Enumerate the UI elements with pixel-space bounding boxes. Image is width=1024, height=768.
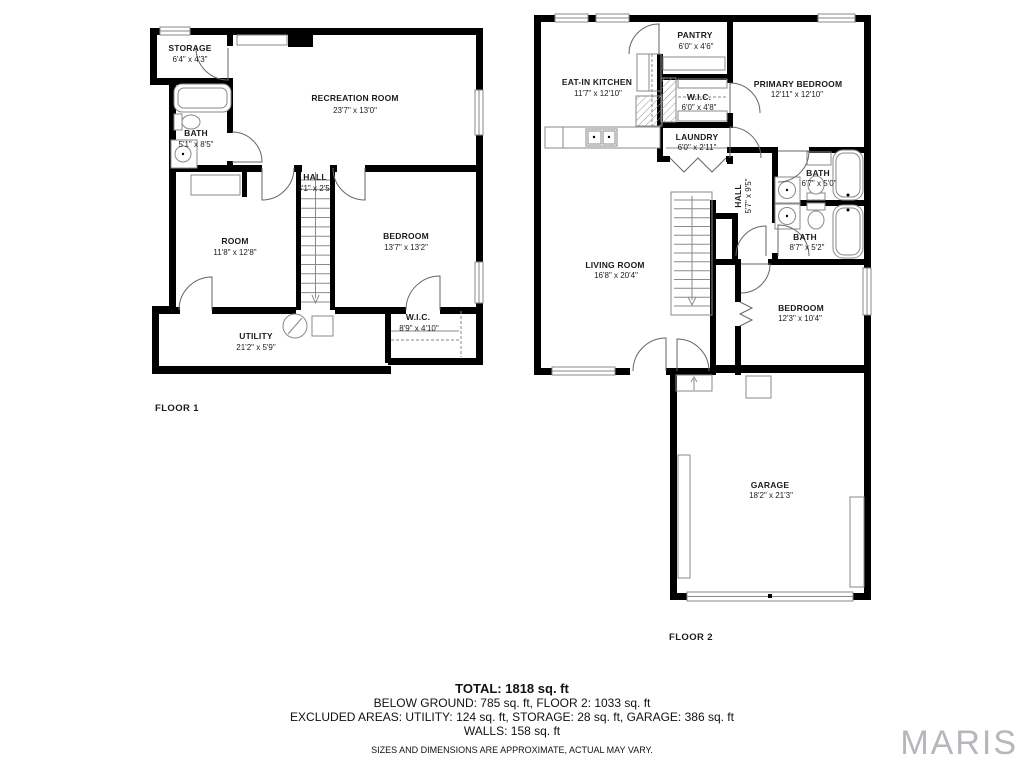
room-closet-shelf	[191, 175, 240, 195]
hall-bedroom-door	[736, 226, 766, 256]
floor1-label: FLOOR 1	[155, 403, 199, 414]
maris-logo: MARIS	[900, 724, 1018, 763]
floor1-bath-fixtures	[171, 84, 231, 168]
floor-areas-line: BELOW GROUND: 785 sq. ft, FLOOR 2: 1033 …	[0, 696, 1024, 710]
disclaimer-line: SIZES AND DIMENSIONS ARE APPROXIMATE, AC…	[0, 745, 1024, 755]
room-dims-garage: 18'2" x 21'3"	[749, 491, 793, 500]
room-label-room: ROOM	[221, 236, 248, 246]
floor-plan-page: STORAGE 6'4" x 4'3" BATH 5'1" x 8'5" REC…	[0, 0, 1024, 768]
room-label-bedroom2: BEDROOM	[778, 303, 824, 313]
garage-shelf-right	[850, 497, 864, 587]
room-dims-bedroom2: 12'3" x 10'4"	[778, 314, 822, 323]
room-label-bath2: BATH	[793, 232, 817, 242]
wic-door	[406, 276, 440, 310]
toilet	[807, 203, 825, 210]
room-label-storage: STORAGE	[168, 43, 211, 53]
entry-door	[677, 339, 709, 371]
room-label-living-room: LIVING ROOM	[585, 260, 644, 270]
garage-shelf-left	[678, 455, 690, 578]
room-dims-bath2: 8'7" x 5'2"	[790, 243, 825, 252]
floor1-utility-fixtures	[283, 314, 333, 338]
room-dims-primary-bedroom: 12'11" x 12'10"	[771, 90, 823, 99]
room-label-bath1: BATH	[806, 168, 830, 178]
shelf	[237, 35, 287, 45]
area-summary: TOTAL: 1818 sq. ft BELOW GROUND: 785 sq.…	[0, 682, 1024, 755]
utility-door	[179, 277, 212, 310]
room-label-bath: BATH	[184, 128, 208, 138]
bedroom-door	[333, 168, 365, 200]
laundry-bifold-door	[670, 158, 726, 172]
water-heater	[746, 376, 771, 398]
room-dims-living-room: 16'8" x 20'4"	[594, 271, 638, 280]
room-dims-hall2: 5'7" x 9'5"	[744, 178, 753, 213]
room-label-recreation: RECREATION ROOM	[311, 93, 398, 103]
primary-bedroom-door	[730, 127, 761, 158]
floor1-plan: STORAGE 6'4" x 4'3" BATH 5'1" x 8'5" REC…	[150, 27, 483, 414]
room-door	[262, 168, 294, 200]
bathtub	[833, 150, 863, 200]
floor2-labels: EAT-IN KITCHEN 11'7" x 12'10" PANTRY 6'0…	[562, 30, 842, 643]
pantry-shelf	[663, 57, 725, 70]
toilet	[174, 114, 182, 130]
room-dims-recreation: 23'7" x 13'0"	[333, 106, 377, 115]
floor2-plan: EAT-IN KITCHEN 11'7" x 12'10" PANTRY 6'0…	[534, 14, 871, 643]
bedroom2-closet-bifold	[740, 302, 752, 326]
room-dims-utility: 21'2" x 5'9"	[236, 343, 276, 352]
room-label-utility: UTILITY	[239, 331, 273, 341]
floor2-label: FLOOR 2	[669, 632, 713, 643]
entry-step	[676, 375, 712, 391]
room-dims-bedroom1: 13'7" x 13'2"	[384, 243, 428, 252]
room-dims-bath1: 6'7" x 5'0"	[802, 179, 837, 188]
excluded-areas-line: EXCLUDED AREAS: UTILITY: 124 sq. ft, STO…	[0, 710, 1024, 724]
room-dims-pantry: 6'0" x 4'6"	[679, 42, 714, 51]
room-label-garage: GARAGE	[751, 480, 790, 490]
bathtub	[833, 205, 863, 258]
room-label-wic2: W.I.C.	[687, 92, 711, 102]
room-dims-wic1: 8'9" x 4'10"	[399, 324, 439, 333]
water-heater	[312, 316, 333, 336]
room-dims-storage: 6'4" x 4'3"	[173, 55, 208, 64]
room-label-hall2: HALL	[733, 184, 743, 207]
front-door	[633, 338, 666, 371]
room-label-primary-bedroom: PRIMARY BEDROOM	[754, 79, 842, 89]
room-dims-room: 11'8" x 12'8"	[213, 248, 256, 257]
room-dims-hall1: 3'1" x 2'5"	[298, 184, 333, 193]
room-label-kitchen: EAT-IN KITCHEN	[562, 77, 632, 87]
room-label-pantry: PANTRY	[677, 30, 712, 40]
stove	[636, 96, 662, 126]
total-area-line: TOTAL: 1818 sq. ft	[0, 682, 1024, 696]
room-label-wic1: W.I.C.	[406, 312, 430, 322]
room-dims-wic2: 6'0" x 4'8"	[682, 103, 717, 112]
floor-plan-canvas: STORAGE 6'4" x 4'3" BATH 5'1" x 8'5" REC…	[0, 0, 1024, 768]
chimney	[288, 29, 313, 47]
room-label-bedroom1: BEDROOM	[383, 231, 429, 241]
kitchen-fixtures	[545, 54, 662, 148]
room-label-laundry: LAUNDRY	[676, 132, 719, 142]
room-dims-bath: 5'1" x 8'5"	[179, 140, 214, 149]
room-dims-laundry: 6'0" x 2'11"	[678, 143, 717, 152]
bedroom2-door	[741, 264, 770, 293]
pantry-door	[629, 24, 659, 54]
floor2-stairs	[671, 192, 712, 315]
bath-door	[232, 132, 262, 162]
walls-area-line: WALLS: 158 sq. ft	[0, 724, 1024, 738]
room-label-hall1: HALL	[303, 172, 326, 182]
room-dims-kitchen: 11'7" x 12'10"	[574, 89, 622, 98]
